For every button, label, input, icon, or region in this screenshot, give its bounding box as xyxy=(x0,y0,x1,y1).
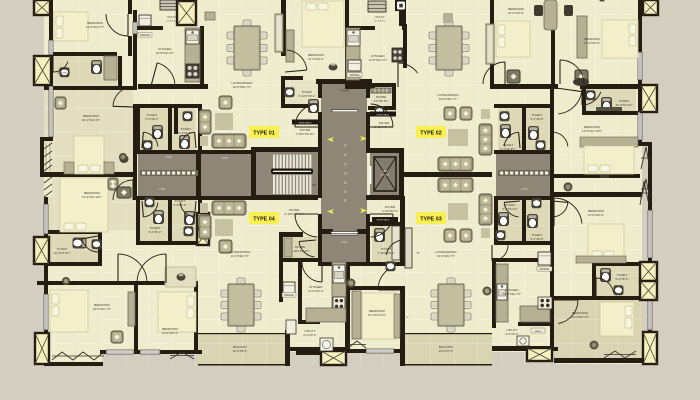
svg-text:11'-0"X12'-2": 11'-0"X12'-2" xyxy=(308,289,324,293)
svg-text:TYPE 02: TYPE 02 xyxy=(420,131,442,137)
svg-text:5'-5"X8'-0": 5'-5"X8'-0" xyxy=(146,117,159,121)
svg-text:5'-2"X8'-0": 5'-2"X8'-0" xyxy=(531,237,544,241)
svg-text:WASH: WASH xyxy=(535,330,542,333)
svg-text:VOID: VOID xyxy=(159,187,166,191)
svg-text:11'-2"X13'-2½": 11'-2"X13'-2½" xyxy=(368,313,386,317)
svg-text:6'-2"X3'-0": 6'-2"X3'-0" xyxy=(304,333,317,337)
svg-text:FRIDGE: FRIDGE xyxy=(284,293,294,297)
svg-text:5'-0"X7'-6": 5'-0"X7'-6" xyxy=(58,71,71,75)
svg-text:14'-0"X10'-7½": 14'-0"X10'-7½" xyxy=(571,315,589,319)
svg-text:14'-0"X10'-0": 14'-0"X10'-0" xyxy=(508,11,524,15)
svg-text:VOID: VOID xyxy=(222,156,229,160)
svg-text:5'-10½"X5'-4": 5'-10½"X5'-4" xyxy=(299,94,316,98)
svg-text:16'-0"X26'-7½": 16'-0"X26'-7½" xyxy=(233,85,251,89)
svg-text:6'-10½"X5'-4½": 6'-10½"X5'-4½" xyxy=(290,249,309,253)
svg-text:TYPE 04: TYPE 04 xyxy=(253,217,275,223)
svg-text:TV: TV xyxy=(416,252,419,255)
svg-text:14'-0"X10'-6": 14'-0"X10'-6" xyxy=(162,331,178,335)
svg-text:5'-1"X4'-4½": 5'-1"X4'-4½" xyxy=(500,147,515,151)
svg-text:16'-4"X10'-10½": 16'-4"X10'-10½" xyxy=(82,195,102,199)
svg-text:FOYER: FOYER xyxy=(340,89,349,93)
svg-text:VOID: VOID xyxy=(521,187,528,191)
svg-text:10'-8"X10'-7½": 10'-8"X10'-7½" xyxy=(503,292,521,296)
svg-text:14'-0"X10'-0": 14'-0"X10'-0" xyxy=(588,213,604,217)
svg-text:14′-0″X10′-7½″: 14′-0″X10′-7½″ xyxy=(86,25,104,29)
svg-text:5'-1"X4'-4½": 5'-1"X4'-4½" xyxy=(502,207,517,211)
svg-text:10'-0"X3'-9½": 10'-0"X3'-9½" xyxy=(54,251,71,255)
svg-text:FRIDGE: FRIDGE xyxy=(140,33,150,37)
svg-text:UTILITY: UTILITY xyxy=(167,16,177,19)
svg-text:14'-0"X10'-0": 14'-0"X10'-0" xyxy=(584,41,600,45)
svg-text:LIFT: LIFT xyxy=(383,171,388,173)
svg-text:7'-10½"X5'-4½": 7'-10½"X5'-4½" xyxy=(295,132,314,136)
svg-text:16'-4"X10'-4½": 16'-4"X10'-4½" xyxy=(82,118,100,122)
svg-text:11'-9"X10'-2½": 11'-9"X10'-2½" xyxy=(369,58,387,62)
svg-text:UP: UP xyxy=(312,183,316,187)
svg-text:TYPE 01: TYPE 01 xyxy=(253,131,275,137)
svg-text:SHOE RACK: SHOE RACK xyxy=(299,121,312,124)
svg-text:14'-9"X5'-6": 14'-9"X5'-6" xyxy=(233,349,247,353)
svg-text:FRIDGE: FRIDGE xyxy=(350,73,360,77)
svg-text:16'-8"X10'-7½": 16'-8"X10'-7½" xyxy=(93,307,111,311)
svg-text:5'-5"X8'-0": 5'-5"X8'-0" xyxy=(616,277,629,281)
svg-text:3'-0"X5'-4½": 3'-0"X5'-4½" xyxy=(373,99,388,103)
svg-text:VOID: VOID xyxy=(166,155,173,159)
svg-text:11'-2"X13'-2": 11'-2"X13'-2" xyxy=(308,57,324,61)
svg-text:11'-9"X3'-6": 11'-9"X3'-6" xyxy=(374,21,385,23)
svg-text:5'-2"X8'-0": 5'-2"X8'-0" xyxy=(531,117,544,121)
svg-text:14'-0"X10'-10½": 14'-0"X10'-10½" xyxy=(582,129,602,133)
svg-text:16'-0"X26'-7½": 16'-0"X26'-7½" xyxy=(231,254,249,258)
svg-text:5'-4"X6'-8": 5'-4"X6'-8" xyxy=(380,175,390,177)
svg-text:16'-0"X26'-7½": 16'-0"X26'-7½" xyxy=(437,254,455,258)
svg-text:UTILITY: UTILITY xyxy=(375,16,385,19)
svg-text:G: G xyxy=(344,190,347,194)
svg-text:TYPE 03: TYPE 03 xyxy=(420,217,442,223)
svg-text:16'-0"X7'-0": 16'-0"X7'-0" xyxy=(439,349,453,353)
svg-text:10'-0"X3'-9½": 10'-0"X3'-9½" xyxy=(616,103,633,107)
svg-text:VOID: VOID xyxy=(341,240,348,244)
svg-text:4'-10"X10'-6": 4'-10"X10'-6" xyxy=(382,209,398,213)
svg-text:FRIDGE: FRIDGE xyxy=(540,267,550,271)
svg-text:16'-0"X26'-7½": 16'-0"X26'-7½" xyxy=(439,97,457,101)
svg-text:SHOE RACK: SHOE RACK xyxy=(377,218,390,221)
svg-text:5'-2"X8'-0": 5'-2"X8'-0" xyxy=(149,230,162,234)
svg-text:5'-0"X3'-0": 5'-0"X3'-0" xyxy=(506,332,519,336)
svg-text:10'-9"X10'-2½": 10'-9"X10'-2½" xyxy=(156,51,174,55)
svg-text:SHOE RACK: SHOE RACK xyxy=(377,113,390,116)
